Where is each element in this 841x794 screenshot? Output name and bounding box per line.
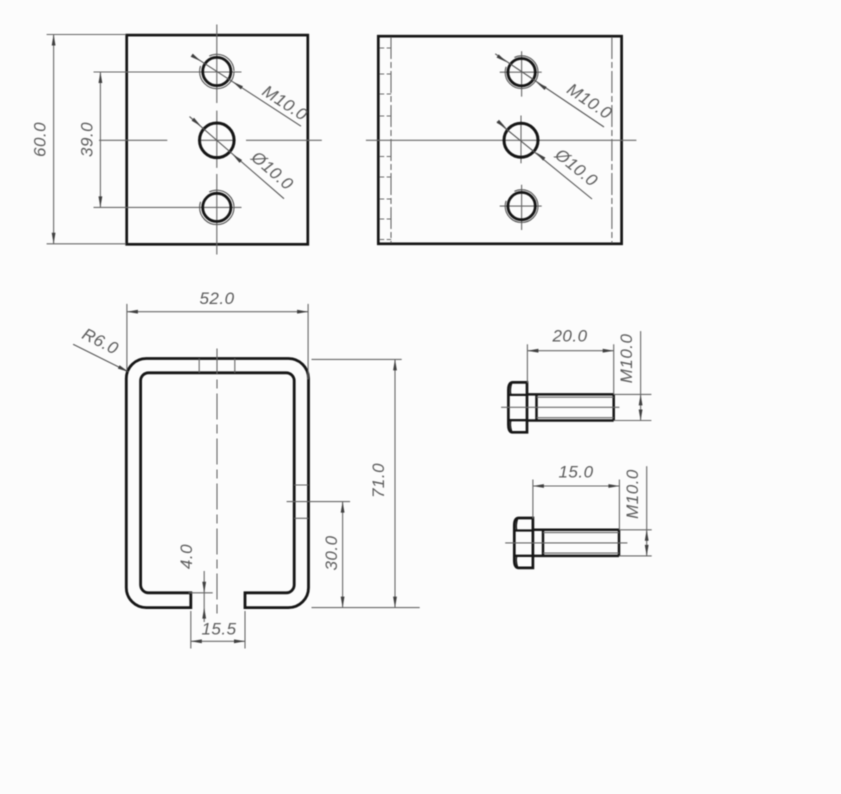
svg-text:15.5: 15.5 [201,620,236,639]
svg-text:52.0: 52.0 [199,289,234,308]
svg-text:M10.0: M10.0 [623,469,642,519]
svg-text:39.0: 39.0 [77,122,96,157]
svg-text:15.0: 15.0 [558,463,593,482]
svg-text:60.0: 60.0 [31,122,50,157]
svg-text:M10.0: M10.0 [617,333,636,383]
svg-text:71.0: 71.0 [369,463,388,498]
svg-text:20.0: 20.0 [551,327,587,346]
svg-text:4.0: 4.0 [177,544,196,569]
svg-text:30.0: 30.0 [322,535,341,570]
